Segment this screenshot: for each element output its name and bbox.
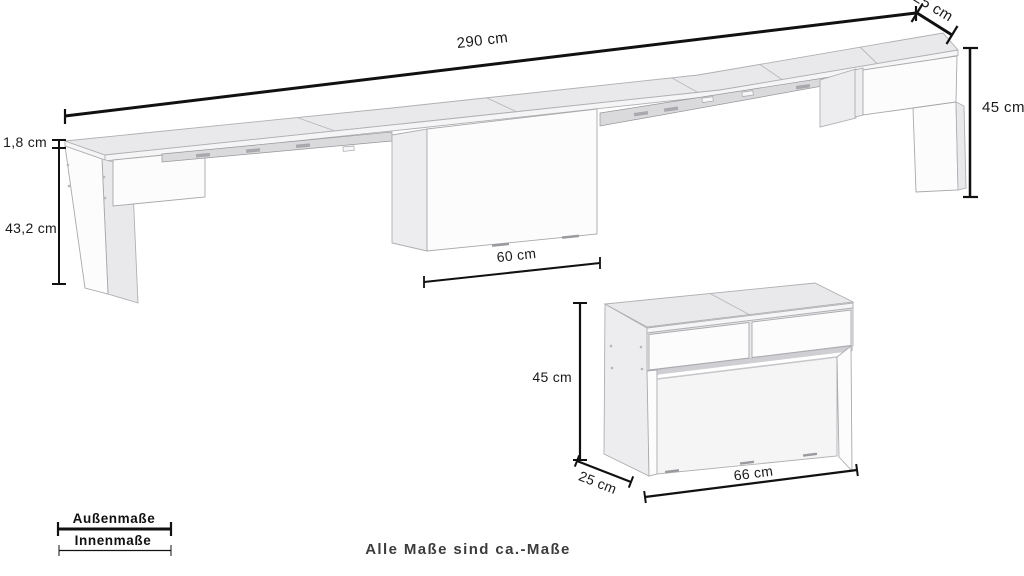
bench-right-leg xyxy=(913,102,958,192)
legend-inner-label: Innenmaße xyxy=(75,533,152,548)
bench-left-leg-outer-face xyxy=(65,146,108,294)
dim-compact-height-45: 45 cm xyxy=(532,303,587,460)
bench-right-leg-edge xyxy=(956,102,966,190)
compact-right-pillar xyxy=(837,346,852,471)
dim-height-45: 45 cm xyxy=(963,48,1024,197)
bench-right-box-side xyxy=(855,68,863,117)
bench-pedestal-front xyxy=(427,109,597,251)
compact-left-pillar xyxy=(647,370,657,476)
bench-compact-drawing: 45 cm 25 cm 66 cm xyxy=(532,283,857,503)
dim-height-45-label: 45 cm xyxy=(982,99,1024,116)
dim-clearance-label: 43,2 cm xyxy=(5,220,57,236)
bench-extended-drawing: 290 cm 25 cm 45 cm 1,8 cm 43,2 cm xyxy=(3,0,1024,303)
legend: Außenmaße Innenmaße xyxy=(58,511,171,556)
footnote: Alle Maße sind ca.-Maße xyxy=(365,541,571,558)
dim-compact-height-label: 45 cm xyxy=(532,369,572,385)
dim-length-290-label: 290 cm xyxy=(456,29,509,52)
dim-top-thickness-18: 1,8 cm xyxy=(3,134,66,150)
legend-outer-label: Außenmaße xyxy=(73,511,156,526)
compact-left-side xyxy=(604,304,649,476)
dim-pedestal-60-label: 60 cm xyxy=(496,245,537,265)
diagram-canvas: 290 cm 25 cm 45 cm 1,8 cm 43,2 cm xyxy=(0,0,1024,576)
compact-recessed-panel xyxy=(657,357,837,474)
dimension-diagram: 290 cm 25 cm 45 cm 1,8 cm 43,2 cm xyxy=(0,0,1024,576)
dim-compact-depth-label: 25 cm xyxy=(576,468,619,497)
dim-top-thickness-label: 1,8 cm xyxy=(3,134,47,150)
dim-pedestal-60: 60 cm xyxy=(424,245,600,288)
bench-pedestal-side xyxy=(392,129,427,251)
dim-clearance-432: 43,2 cm xyxy=(5,148,66,284)
